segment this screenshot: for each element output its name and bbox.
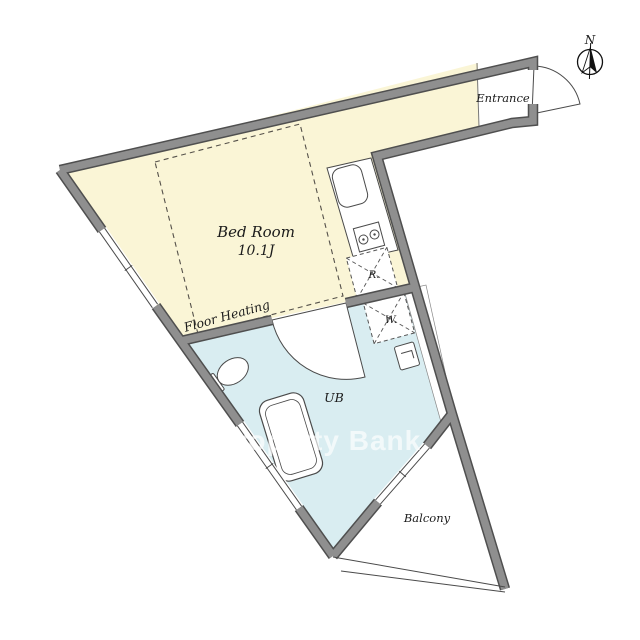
refrigerator-label: R. — [367, 269, 379, 281]
entrance-door — [532, 66, 580, 114]
bedroom-name: Bed Room — [216, 223, 295, 241]
ub-label: UB — [324, 390, 344, 405]
north-label: N — [584, 33, 596, 47]
compass-icon — [577, 43, 603, 80]
floor-plan-page: Bed Room 10.1J Floor Heating Entrance UB… — [0, 0, 640, 640]
washer-label: W. — [385, 314, 397, 326]
bedroom-size: 10.1J — [238, 243, 276, 259]
watermark: Property Bank — [217, 425, 421, 456]
entrance-label: Entrance — [475, 91, 530, 105]
balcony-label: Balcony — [403, 511, 451, 525]
floor-plan: Bed Room 10.1J Floor Heating Entrance UB… — [0, 0, 640, 640]
